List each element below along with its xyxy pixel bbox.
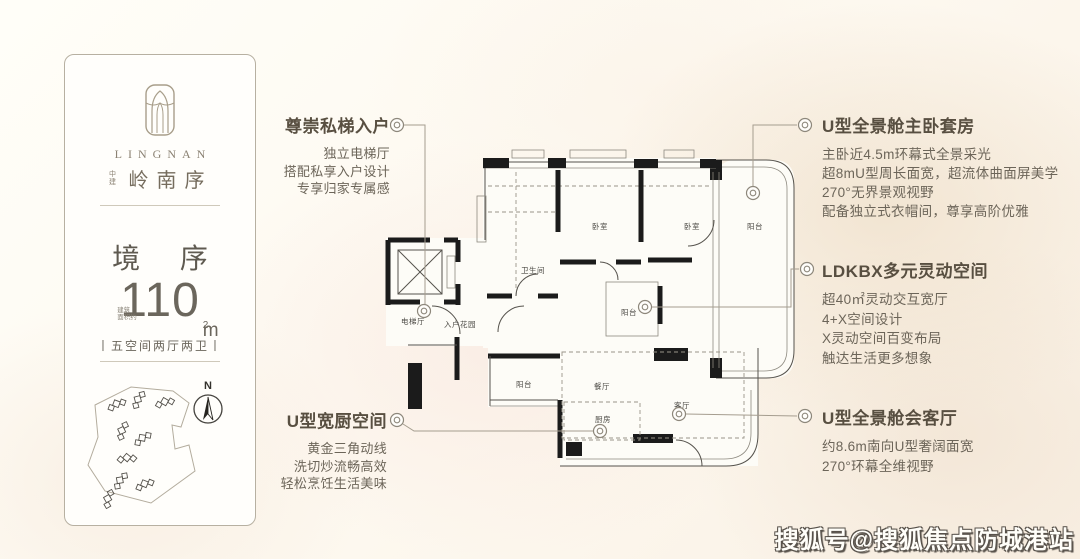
room-label-kitchen: 厨房	[595, 414, 611, 424]
marker-mid-balcony	[639, 301, 652, 314]
room-label-balcony-left: 阳台	[516, 379, 532, 389]
marker-callout-living	[799, 410, 812, 423]
room-label-dining: 餐厅	[594, 382, 610, 391]
marker-callout-ldkbx	[801, 263, 814, 276]
room-label-bedroom-2: 卧室	[684, 221, 700, 231]
room-label-entry-garden: 入户花园	[444, 319, 476, 329]
marker-living	[673, 408, 686, 421]
floor-plan-backdrop	[386, 158, 794, 466]
marker-callout-master	[799, 119, 812, 132]
room-label-balcony-mid: 阳台	[621, 307, 637, 317]
watermark: 搜狐号@搜狐焦点防城港站	[775, 520, 1074, 555]
floor-plan: 电梯厅 入户花园 卫生间 卧室 卧室 阳台 阳台 阳台 餐厅 厨房 客厅	[0, 0, 1080, 559]
room-label-bedroom-1: 卧室	[592, 221, 608, 231]
marker-master-balcony	[747, 187, 760, 200]
room-label-bathroom: 卫生间	[521, 265, 545, 275]
room-label-balcony-master: 阳台	[747, 221, 763, 231]
marker-callout-entry	[391, 119, 404, 132]
marker-kitchen	[594, 425, 607, 438]
poster: LINGNAN 中建 岭南序 境 序 建筑 面积约 110 m2 丨五空间两厅两…	[0, 0, 1080, 559]
marker-elevator-hall	[418, 305, 431, 318]
marker-callout-kitchen	[391, 414, 404, 427]
